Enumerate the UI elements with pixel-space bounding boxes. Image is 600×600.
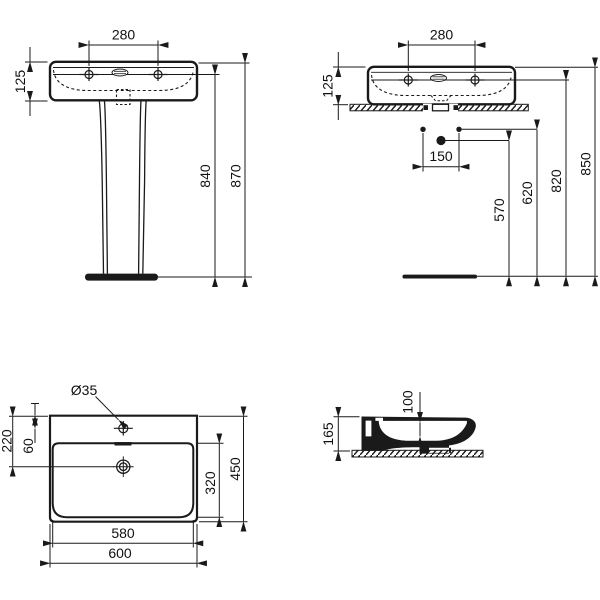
dimension-section-bowl-depth: 100 <box>400 390 421 436</box>
pedestal-base-plate <box>85 274 158 281</box>
wall-hatch-band <box>352 450 483 457</box>
dimension-front-tap-spacing: 280 <box>89 27 158 67</box>
drain-symbol <box>113 456 134 477</box>
dimension-overall-depth: 450 <box>199 416 248 522</box>
dim-label: 150 <box>429 148 453 164</box>
pedestal <box>99 100 146 273</box>
dim-label: 280 <box>112 27 136 43</box>
dimension-fixing-height: 620 <box>519 130 537 276</box>
wall-mount-view: 280 125 150 570 620 820 <box>320 27 599 279</box>
bowl-plan-outline <box>53 443 194 517</box>
dimension-wall-tap-spacing: 280 <box>408 27 475 72</box>
dim-label: 840 <box>197 164 213 188</box>
drawing-canvas: 280 125 840 870 <box>0 0 600 600</box>
dimension-front-basin-height: 125 <box>12 47 48 116</box>
dim-label: 100 <box>400 390 416 414</box>
dimension-wall-rim-height: 820 <box>548 81 566 276</box>
plan-view: Ø35 220 60 320 450 <box>0 382 247 568</box>
dim-label: 125 <box>12 70 28 94</box>
drain-hidden-line <box>431 96 451 101</box>
dim-label: 820 <box>548 169 564 193</box>
dim-label: Ø35 <box>71 382 98 398</box>
dimension-tap-from-rear: 60 <box>20 404 39 454</box>
floor-bar <box>403 275 478 279</box>
overflow-symbol <box>431 75 447 82</box>
dim-label: 220 <box>0 429 14 453</box>
dim-label: 850 <box>578 152 594 176</box>
tap-hole-symbol <box>399 74 418 87</box>
tap-hole-symbol <box>80 68 99 81</box>
dimension-section-height: 165 <box>320 417 360 451</box>
tap-hole-symbol <box>466 74 485 87</box>
wall-hatch-band <box>350 104 528 112</box>
front-pedestal-view: 280 125 840 870 <box>12 27 252 281</box>
dim-label: 165 <box>320 422 336 446</box>
dim-label: 620 <box>519 181 535 205</box>
dimension-bowl-width: 580 <box>53 520 194 548</box>
side-section-view: 165 100 <box>320 390 483 457</box>
dim-label: 280 <box>430 27 454 43</box>
fixing-hole-dot <box>420 127 425 132</box>
drain-hidden-outline <box>117 90 131 105</box>
trap-cover-outline <box>433 104 449 111</box>
dim-label: 870 <box>228 164 244 188</box>
dim-label: 450 <box>227 457 243 481</box>
dim-label: 320 <box>202 471 218 495</box>
dimension-front-rim-height: 840 <box>197 75 220 277</box>
dimension-bowl-depth: 320 <box>196 443 224 517</box>
dim-label: 60 <box>20 438 36 454</box>
dim-label: 600 <box>108 545 132 561</box>
dim-label: 580 <box>111 525 135 541</box>
tap-hole-symbol <box>149 68 168 81</box>
overflow-slot <box>115 442 132 445</box>
dimension-outlet-height: 570 <box>491 141 509 276</box>
dim-label: 570 <box>491 198 507 222</box>
dim-label: 125 <box>320 74 336 98</box>
technical-drawing-washbasin: 280 125 840 870 <box>0 0 600 600</box>
dimension-outlet-from-rear: 220 <box>0 416 114 467</box>
basin-section-profile <box>362 417 476 454</box>
tap-hole-diameter-callout: Ø35 <box>71 382 119 420</box>
tap-hole-symbol <box>114 421 133 436</box>
overflow-symbol <box>112 69 128 76</box>
